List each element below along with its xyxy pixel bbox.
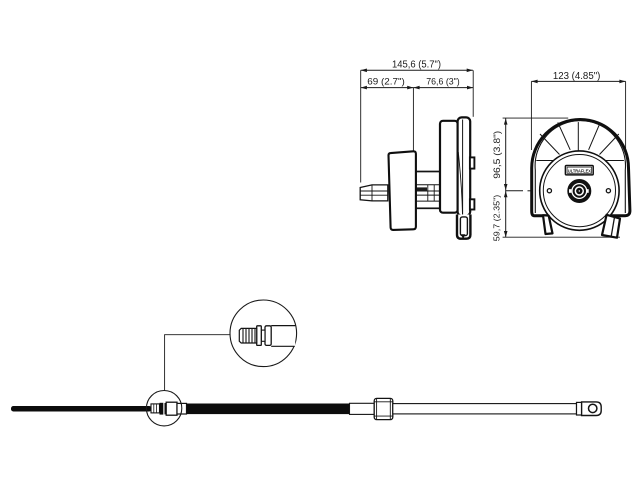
svg-text:69 (2.7"): 69 (2.7") bbox=[367, 77, 405, 88]
svg-text:96,5 (3.8"): 96,5 (3.8") bbox=[492, 131, 502, 179]
svg-text:145,6 (5.7"): 145,6 (5.7") bbox=[392, 59, 441, 70]
svg-text:59,7 (2.35"): 59,7 (2.35") bbox=[491, 195, 501, 242]
svg-text:76,6 (3"): 76,6 (3") bbox=[426, 77, 460, 88]
svg-text:123 (4.85"): 123 (4.85") bbox=[553, 71, 601, 82]
svg-text:ULTRAFLEX: ULTRAFLEX bbox=[568, 168, 592, 173]
